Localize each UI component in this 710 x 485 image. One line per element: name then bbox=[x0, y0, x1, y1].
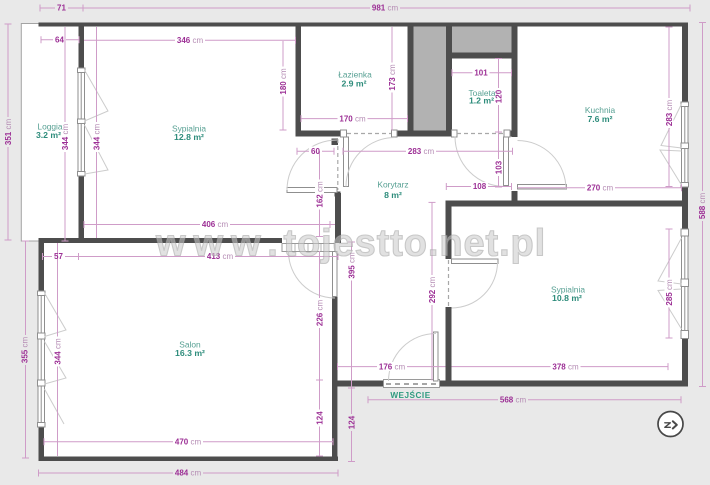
svg-text:1.2 m²: 1.2 m² bbox=[469, 95, 494, 105]
svg-text:270 cm: 270 cm bbox=[587, 183, 614, 192]
svg-text:Korytarz: Korytarz bbox=[377, 180, 408, 190]
svg-text:124: 124 bbox=[315, 411, 324, 425]
svg-text:64: 64 bbox=[55, 35, 64, 44]
svg-text:8 m²: 8 m² bbox=[384, 190, 402, 200]
svg-text:10.8 m²: 10.8 m² bbox=[552, 293, 582, 303]
svg-text:12.8 m²: 12.8 m² bbox=[174, 132, 204, 142]
svg-text:568 cm: 568 cm bbox=[500, 396, 527, 405]
svg-text:346 cm: 346 cm bbox=[177, 36, 204, 45]
svg-text:170 cm: 170 cm bbox=[339, 114, 366, 123]
svg-text:3.2 m²: 3.2 m² bbox=[36, 130, 61, 140]
svg-text:285 cm: 285 cm bbox=[665, 279, 674, 306]
svg-text:283 cm: 283 cm bbox=[408, 147, 435, 156]
svg-text:344 cm: 344 cm bbox=[53, 338, 62, 365]
svg-text:378 cm: 378 cm bbox=[552, 362, 579, 371]
svg-text:292 cm: 292 cm bbox=[428, 277, 437, 304]
svg-text:981 cm: 981 cm bbox=[372, 4, 399, 13]
svg-text:588 cm: 588 cm bbox=[698, 193, 707, 220]
svg-text:103: 103 bbox=[494, 160, 503, 174]
svg-text:www.: www. bbox=[155, 223, 286, 265]
svg-text:124: 124 bbox=[347, 415, 356, 429]
svg-text:180 cm: 180 cm bbox=[279, 68, 288, 95]
svg-text:57: 57 bbox=[54, 252, 63, 261]
svg-text:60: 60 bbox=[311, 147, 320, 156]
svg-text:484 cm: 484 cm bbox=[175, 469, 202, 478]
svg-text:162 cm: 162 cm bbox=[315, 181, 324, 208]
svg-text:355 cm: 355 cm bbox=[20, 337, 29, 364]
svg-text:344 cm: 344 cm bbox=[92, 124, 101, 151]
svg-text:226 cm: 226 cm bbox=[315, 300, 324, 327]
svg-text:101: 101 bbox=[474, 69, 488, 78]
svg-text:71: 71 bbox=[57, 4, 66, 13]
svg-text:351 cm: 351 cm bbox=[4, 119, 13, 146]
svg-text:108: 108 bbox=[473, 182, 487, 191]
svg-text:2.9 m²: 2.9 m² bbox=[341, 79, 366, 89]
svg-text:16.3 m²: 16.3 m² bbox=[175, 348, 205, 358]
svg-text:120: 120 bbox=[494, 89, 503, 103]
svg-text:WEJŚCIE: WEJŚCIE bbox=[390, 389, 430, 400]
svg-text:470 cm: 470 cm bbox=[175, 438, 202, 447]
svg-text:176 cm: 176 cm bbox=[379, 362, 406, 371]
svg-text:173 cm: 173 cm bbox=[388, 64, 397, 91]
svg-text:tojestto.net.pl: tojestto.net.pl bbox=[284, 223, 547, 265]
svg-text:7.6 m²: 7.6 m² bbox=[587, 114, 612, 124]
svg-text:283 cm: 283 cm bbox=[665, 100, 674, 127]
